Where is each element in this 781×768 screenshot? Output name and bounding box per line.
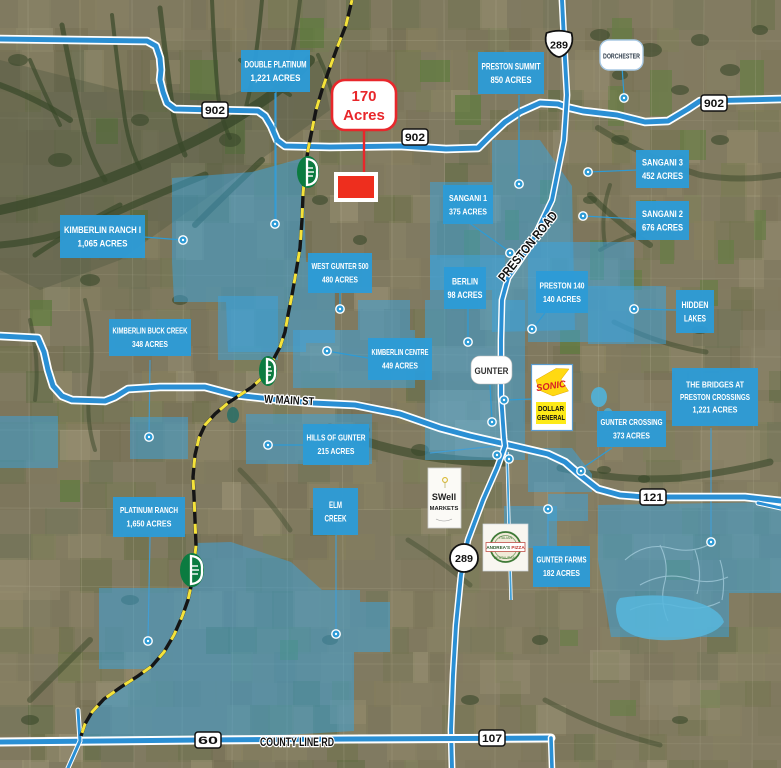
svg-text:SWell: SWell	[432, 492, 456, 502]
svg-text:DOLLAR: DOLLAR	[538, 404, 565, 413]
svg-text:KIMBERLIN CENTRE: KIMBERLIN CENTRE	[372, 348, 429, 357]
svg-text:HIDDEN: HIDDEN	[682, 300, 709, 310]
svg-text:WEST GUNTER 500: WEST GUNTER 500	[312, 262, 369, 271]
svg-text:DORCHESTER: DORCHESTER	[603, 52, 640, 61]
svg-text:902: 902	[704, 98, 724, 110]
svg-text:SANGANI 2: SANGANI 2	[642, 209, 683, 219]
svg-text:60: 60	[198, 735, 218, 747]
svg-text:ITALIAN: ITALIAN	[499, 536, 512, 540]
svg-text:GUNTER: GUNTER	[475, 366, 509, 376]
svg-text:452 ACRES: 452 ACRES	[642, 171, 683, 181]
svg-text:215 ACRES: 215 ACRES	[318, 446, 355, 456]
svg-text:98 ACRES: 98 ACRES	[448, 290, 483, 300]
svg-text:289: 289	[550, 40, 568, 52]
svg-text:480 ACRES: 480 ACRES	[322, 276, 358, 285]
svg-text:PLATINUM RANCH: PLATINUM RANCH	[120, 505, 178, 515]
svg-text:1,221 ACRES: 1,221 ACRES	[693, 404, 738, 414]
svg-text:LAKES: LAKES	[684, 313, 706, 323]
svg-text:170: 170	[351, 88, 376, 105]
svg-text:375 ACRES: 375 ACRES	[449, 206, 487, 216]
svg-text:ANDREA'S PIZZA: ANDREA'S PIZZA	[486, 545, 525, 550]
svg-text:DOUBLE PLATINUM: DOUBLE PLATINUM	[245, 60, 307, 70]
svg-text:GUNTER FARMS: GUNTER FARMS	[537, 555, 587, 565]
svg-text:Acres: Acres	[343, 107, 385, 124]
svg-text:182 ACRES: 182 ACRES	[543, 568, 580, 578]
svg-text:1,650 ACRES: 1,650 ACRES	[127, 519, 172, 529]
svg-text:121: 121	[643, 492, 663, 504]
svg-text:THE BRIDGES AT: THE BRIDGES AT	[686, 379, 745, 389]
svg-text:PRESTON SUMMIT: PRESTON SUMMIT	[482, 62, 541, 72]
svg-text:107: 107	[482, 733, 502, 745]
svg-text:PRESTON 140: PRESTON 140	[540, 280, 585, 290]
svg-text:HILLS OF GUNTER: HILLS OF GUNTER	[307, 433, 366, 443]
svg-text:902: 902	[205, 105, 225, 117]
svg-text:GUNTER CROSSING: GUNTER CROSSING	[601, 417, 663, 427]
svg-text:SANGANI 1: SANGANI 1	[449, 193, 487, 203]
svg-text:CREEK: CREEK	[325, 513, 347, 523]
svg-text:KIMBERLIN RANCH I: KIMBERLIN RANCH I	[64, 225, 141, 235]
svg-text:140 ACRES: 140 ACRES	[543, 294, 581, 304]
svg-text:BERLIN: BERLIN	[452, 276, 478, 286]
svg-text:SANGANI 3: SANGANI 3	[642, 158, 683, 168]
svg-text:KIMBERLIN BUCK CREEK: KIMBERLIN BUCK CREEK	[113, 327, 188, 336]
svg-text:RESTAURANT: RESTAURANT	[494, 556, 518, 560]
svg-text:850 ACRES: 850 ACRES	[491, 75, 532, 85]
svg-text:MARKETS: MARKETS	[430, 506, 459, 512]
svg-text:676 ACRES: 676 ACRES	[642, 223, 683, 233]
svg-text:GENERAL: GENERAL	[537, 413, 565, 422]
svg-text:373 ACRES: 373 ACRES	[613, 431, 650, 441]
svg-text:COUNTY LINE RD: COUNTY LINE RD	[260, 737, 334, 749]
svg-text:1,221 ACRES: 1,221 ACRES	[251, 73, 301, 83]
svg-text:348 ACRES: 348 ACRES	[132, 340, 168, 349]
svg-text:449 ACRES: 449 ACRES	[382, 362, 418, 371]
svg-text:ELM: ELM	[329, 500, 342, 510]
svg-text:PRESTON CROSSINGS: PRESTON CROSSINGS	[680, 392, 750, 402]
svg-text:289: 289	[455, 554, 473, 565]
svg-text:1,065 ACRES: 1,065 ACRES	[78, 239, 128, 249]
svg-text:902: 902	[405, 132, 425, 144]
